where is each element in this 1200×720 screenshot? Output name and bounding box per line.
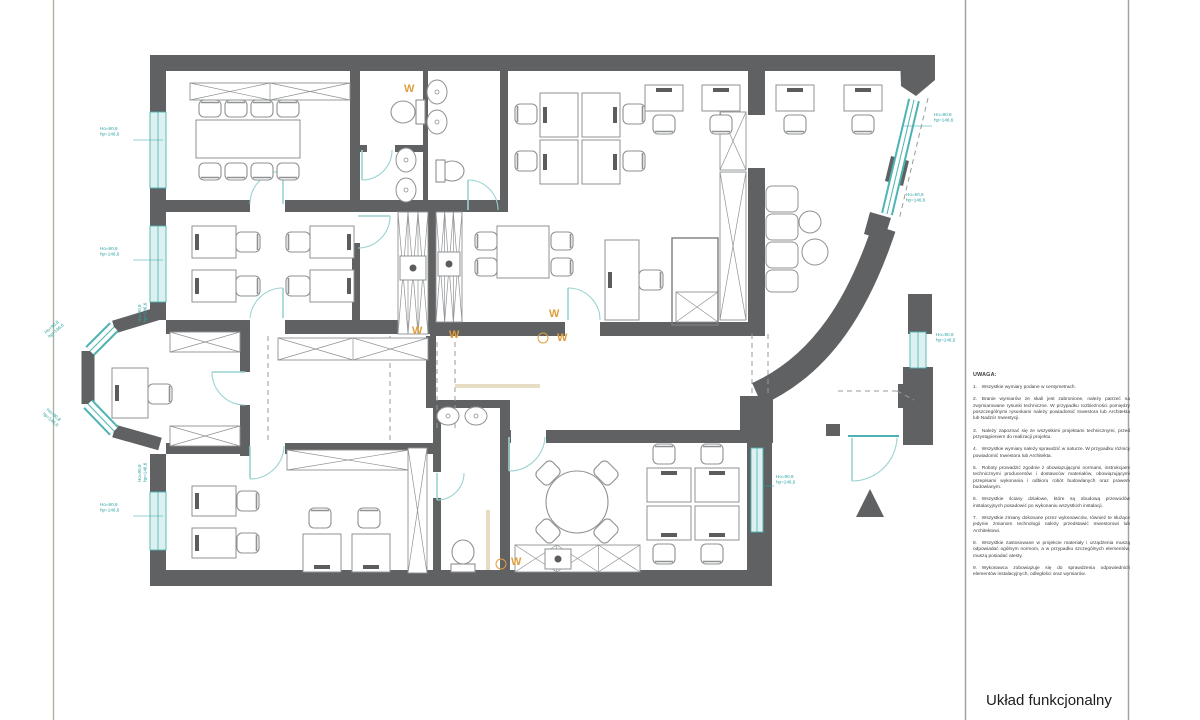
dimension-label: Ho=90,8hp=146,6 [43, 318, 65, 339]
sink [427, 80, 447, 104]
dimension-text: hp=146,6 [100, 132, 120, 137]
dimension-text: Ho=90,8 [137, 304, 142, 322]
monitor [608, 272, 612, 288]
chair [236, 276, 260, 296]
dimension-label: Ho=90,8hp=146,6 [934, 112, 954, 123]
wall [433, 400, 510, 408]
dimension-label: Ho=90,8hp=146,6 [100, 246, 120, 257]
dimension-label: Ho=90,8hp=146,6 [906, 192, 926, 203]
dimension-label: Ho=90,8hp=146,6 [137, 302, 148, 322]
chair [639, 270, 663, 290]
monitor [613, 107, 617, 123]
monitor [661, 533, 677, 537]
chair [286, 232, 310, 252]
sofa-cushion [766, 242, 798, 268]
wall [500, 71, 508, 212]
wall [150, 55, 935, 71]
dimension-text: Ho=90,8 [100, 502, 118, 507]
monitor [661, 471, 677, 475]
dimension-label: Ho=90,8hp=146,6 [100, 502, 120, 513]
monitor [314, 565, 330, 569]
wall [350, 71, 360, 212]
monitor [543, 154, 547, 170]
door-arc [852, 438, 897, 481]
desk [196, 120, 300, 158]
wall [748, 71, 765, 115]
wall [505, 430, 511, 443]
monitor [543, 107, 547, 123]
chair [236, 232, 260, 252]
water-point-mark: W [549, 308, 560, 320]
monitor [363, 565, 379, 569]
wall [898, 384, 918, 408]
monitor [195, 278, 199, 294]
water-point-mark: W [404, 83, 415, 95]
dimension-text: hp=146,6 [934, 118, 954, 123]
toilet-tank [416, 100, 425, 124]
dimension-text: Ho=90,8 [100, 246, 118, 251]
wall [748, 168, 765, 330]
window-angled-center [88, 404, 114, 431]
monitor [195, 234, 199, 250]
door-arc [212, 372, 245, 405]
wall [150, 188, 166, 226]
monitor [709, 471, 725, 475]
note-item: 6. Wszystkie ściany działowe, które są o… [973, 497, 1130, 510]
drawing-title: Układ funkcjonalny [986, 692, 1112, 709]
wall [240, 334, 250, 372]
note-item: 9. Wykonawca zobowiązuje się do sprawdze… [973, 566, 1130, 579]
water-point-mark: W [557, 332, 568, 344]
dimension-text: Ho=90,8 [936, 332, 954, 337]
dimension-text: hp=146,6 [100, 252, 120, 257]
dimension-label: Ho=90,8hp=146,6 [137, 462, 148, 482]
chair [148, 384, 172, 404]
dimension-label: Ho=90,8hp=146,6 [42, 407, 64, 428]
monitor [713, 88, 729, 92]
dimension-text: hp=146,6 [143, 302, 148, 322]
monitor [195, 535, 199, 551]
sink [465, 407, 487, 425]
wall [150, 55, 166, 112]
notes-heading: UWAGA: [973, 372, 1130, 378]
chair [286, 276, 310, 296]
notes-block: UWAGA: 1. Wszystkie wymiary podane w cen… [973, 372, 1130, 585]
sink [396, 148, 416, 172]
water-point-mark: W [511, 556, 522, 568]
wall [740, 396, 773, 440]
drawing-sheet: WWWWWWHo=90,8hp=146,6Ho=90,8hp=146,6Ho=9… [0, 0, 1200, 720]
monitor [347, 278, 351, 294]
desk [497, 226, 549, 278]
wall [433, 498, 441, 572]
note-item: 1. Wszystkie wymiary podane w centymetra… [973, 385, 1130, 391]
side-table [799, 211, 821, 233]
dimension-text: Ho=90,8 [906, 192, 924, 197]
dimension-label: Ho=90,8hp=146,6 [936, 332, 956, 343]
door-arc [437, 473, 464, 500]
note-item: 8. Wszystkie zastosowane w projekcie mat… [973, 541, 1130, 560]
note-item: 7. Wszystkie zmiany dokonane przez wykon… [973, 516, 1130, 535]
side-table [802, 239, 828, 265]
dimension-text: Ho=90,8 [776, 474, 794, 479]
sink [437, 407, 459, 425]
monitor [709, 533, 725, 537]
sofa-cushion [766, 270, 798, 292]
wall [285, 200, 507, 212]
note-item: 3. Należy zapoznać się ze wszystkimi pro… [973, 429, 1130, 442]
wall [600, 322, 765, 336]
wall [826, 424, 840, 436]
monitor [787, 88, 803, 92]
water-point-mark: W [412, 325, 423, 337]
door-arc [362, 150, 392, 180]
dimension-text: Ho=90,8 [137, 464, 142, 482]
monitor [195, 493, 199, 509]
dimension-text: Ho=90,8 [100, 126, 118, 131]
dimension-text: hp=146,6 [143, 462, 148, 482]
wall [150, 454, 166, 492]
floor-plan: WWWWWWHo=90,8hp=146,6Ho=90,8hp=146,6Ho=9… [0, 0, 1200, 720]
toilet-bowl [391, 101, 415, 123]
dimension-text: hp=146,6 [776, 480, 796, 485]
dimension-text: hp=146,6 [100, 508, 120, 513]
note-item: 5. Roboty prowadzić zgodnie z obowiązują… [973, 466, 1130, 491]
wall-corner [900, 55, 935, 96]
sink [396, 178, 416, 202]
water-point-mark: W [449, 329, 460, 341]
wall [150, 550, 166, 572]
kitchen-tap [410, 265, 417, 272]
dimension-label: Ho=90,8hp=146,6 [100, 126, 120, 137]
notes-list: 1. Wszystkie wymiary podane w centymetra… [973, 385, 1130, 579]
monitor [613, 154, 617, 170]
entrance-arrow [856, 489, 884, 517]
toilet-tank [451, 564, 475, 572]
door-arc [358, 216, 390, 248]
sofa-cushion [766, 214, 798, 240]
door-arc [250, 446, 284, 479]
sofa-cushion [766, 186, 798, 212]
door-arc [509, 437, 545, 471]
kitchen-tap [555, 556, 562, 563]
wall-bay [114, 431, 160, 444]
door-arc [568, 288, 600, 320]
sink [427, 110, 447, 134]
kitchen-tap [446, 261, 453, 268]
toilet-bowl [452, 540, 474, 564]
dimension-text: hp=146,6 [906, 198, 926, 203]
dimension-text: hp=146,6 [936, 338, 956, 343]
dimension-text: Ho=90,8 [934, 112, 952, 117]
round-table [546, 471, 608, 533]
note-item: 4. Wszystkie wymiary należy sprawdzić w … [973, 447, 1130, 460]
monitor [347, 234, 351, 250]
note-item: 2. Branie wymiarów ze skali jest zabroni… [973, 397, 1130, 422]
wall [166, 200, 250, 212]
wall [428, 212, 436, 322]
toilet-tank [436, 160, 445, 182]
dimension-label: Ho=90,8hp=146,6 [776, 474, 796, 485]
wall [908, 294, 932, 334]
monitor [855, 88, 871, 92]
monitor [115, 385, 119, 401]
wall [546, 430, 773, 443]
monitor [656, 88, 672, 92]
